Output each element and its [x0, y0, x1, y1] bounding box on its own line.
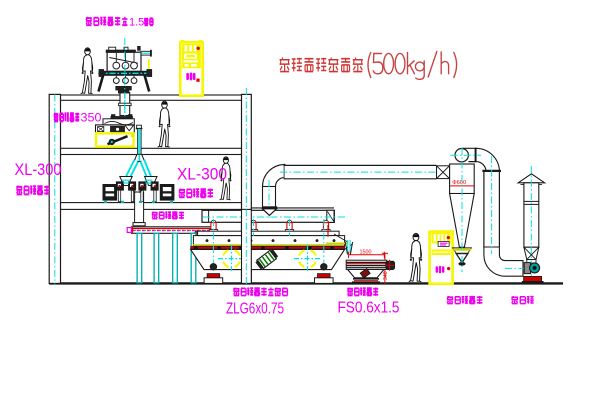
svg-text:XL-300: XL-300 — [15, 161, 62, 179]
svg-text:350: 350 — [81, 111, 102, 125]
svg-text:FS0.6x1.5: FS0.6x1.5 — [338, 300, 400, 317]
svg-text:1.5: 1.5 — [129, 17, 144, 29]
svg-text:340: 340 — [383, 271, 389, 280]
svg-text:Φ600: Φ600 — [452, 180, 466, 186]
svg-text:1500: 1500 — [360, 249, 372, 255]
svg-text:XL-300: XL-300 — [177, 166, 227, 184]
svg-text:ZLG6x0.75: ZLG6x0.75 — [226, 301, 284, 318]
